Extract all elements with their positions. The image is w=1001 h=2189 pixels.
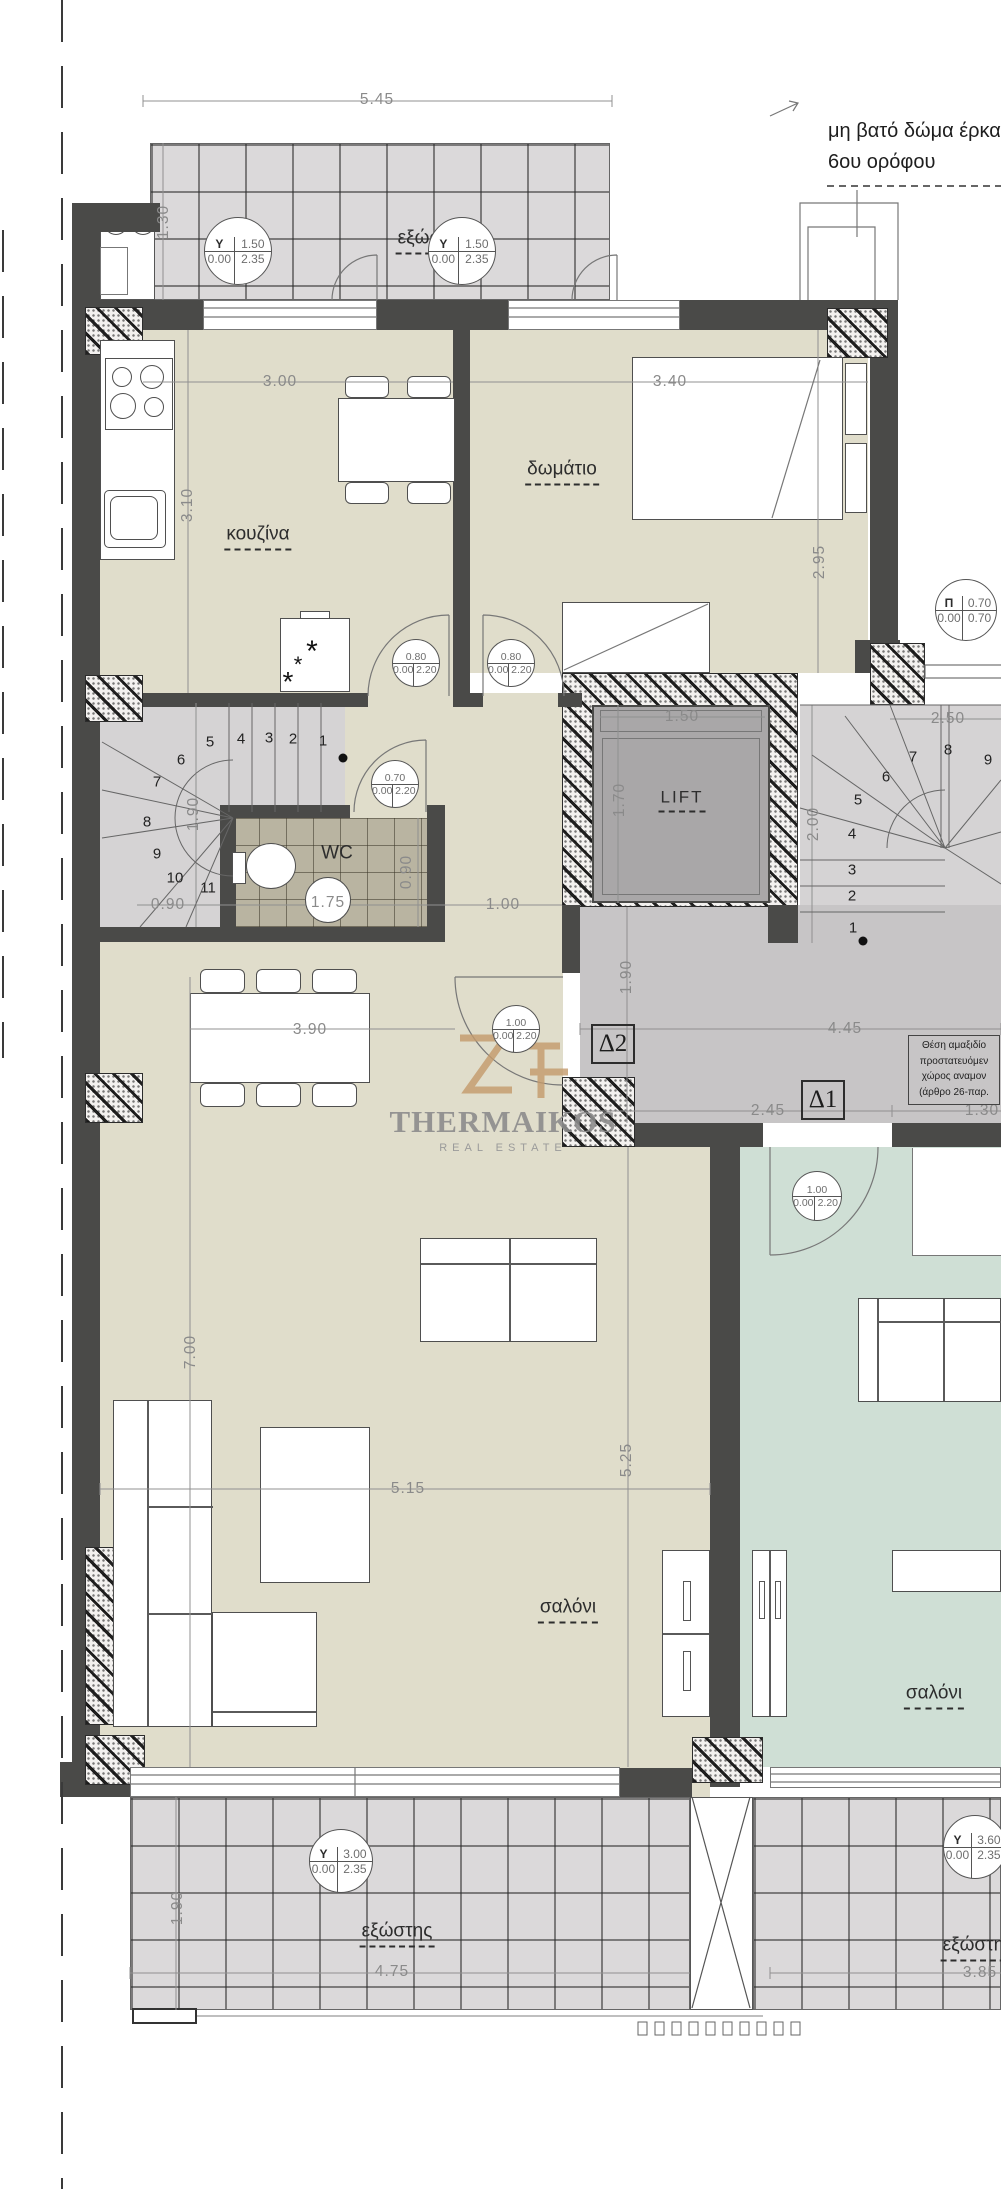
- door-height-marker: Y3.600.002.35: [943, 1815, 1001, 1879]
- stair-step-number: 4: [848, 826, 856, 843]
- dimension-label: 1.90: [169, 1891, 187, 1925]
- stair-step-number: 6: [882, 769, 890, 786]
- roof-note: μη βατό δώμα έρκα 6ου ορόφου: [828, 116, 1001, 178]
- door-height-marker: Π0.700.000.70: [935, 579, 997, 641]
- dimension-label: 5.15: [391, 1480, 425, 1498]
- stair-step-number: 4: [237, 731, 245, 748]
- door-height-marker: 1.000.002.20: [792, 1171, 842, 1221]
- stair-step-number: 5: [854, 792, 862, 809]
- door-height-marker: Y1.500.002.35: [204, 217, 272, 285]
- floor-plan: μη βατό δώμα έρκα 6ου ορόφου THERMAIKOS …: [0, 0, 1001, 2189]
- room-label-wc: WC: [319, 843, 355, 868]
- sparkle-icon: *: [306, 637, 318, 667]
- room-label-living-right: σαλόνι: [904, 1683, 964, 1710]
- dimension-label: 0.90: [398, 855, 416, 889]
- dimension-label: 1.90: [618, 960, 636, 994]
- dimension-label: 0.90: [151, 896, 185, 914]
- stair-step-number: 10: [167, 870, 184, 887]
- door-tag-Δ2: Δ2: [591, 1024, 635, 1064]
- annotation-overlay: εξώστηςκουζίναδωμάτιοWCLIFTσαλόνισαλόνιε…: [0, 0, 1001, 2189]
- stair-step-number: 5: [206, 734, 214, 751]
- dimension-label: 1.30: [155, 205, 173, 239]
- door-height-marker: 0.700.002.20: [371, 760, 419, 808]
- dimension-label: 1.70: [611, 783, 629, 817]
- stair-step-number: 11: [200, 880, 216, 897]
- dimension-label: 1.75: [311, 894, 345, 912]
- accessibility-note-line: προστατευόμεν: [909, 1054, 999, 1070]
- stair-step-number: 2: [289, 731, 297, 748]
- dimension-label: 2.95: [811, 545, 829, 579]
- stair-step-number: 9: [984, 752, 992, 769]
- room-label-balcony-bottom-left: εξώστης: [360, 1921, 435, 1948]
- dimension-label: 3.85: [963, 1964, 997, 1982]
- dimension-label: 7.00: [182, 1335, 200, 1369]
- stair-step-number: 3: [848, 862, 856, 879]
- accessibility-note-line: (άρθρο 26-παρ.: [909, 1085, 999, 1101]
- dimension-label: 3.10: [179, 488, 197, 522]
- stair-step-number: 7: [153, 774, 161, 791]
- stair-step-number: 3: [265, 730, 273, 747]
- accessibility-note-line: χώρος αναμον: [909, 1069, 999, 1085]
- dimension-label: 1.50: [665, 708, 699, 726]
- stair-step-number: 8: [944, 742, 952, 759]
- dimension-label: 3.90: [293, 1021, 327, 1039]
- door-tag-Δ1: Δ1: [801, 1080, 845, 1120]
- dimension-label: 2.50: [931, 710, 965, 728]
- stair-step-number: 1: [319, 733, 327, 750]
- room-label-balcony-bottom-right: εξώστης: [941, 1935, 1001, 1962]
- dimension-label: 1.90: [185, 797, 203, 831]
- stair-step-number: 9: [153, 846, 161, 863]
- dimension-label: 3.40: [653, 373, 687, 391]
- room-label-kitchen: κουζίνα: [224, 524, 291, 551]
- stair-step-number: 1: [849, 920, 857, 937]
- dimension-label: 2.00: [805, 807, 823, 841]
- sparkle-icon: *: [294, 654, 303, 676]
- door-height-marker: 1.000.002.20: [492, 1005, 540, 1053]
- dimension-label: 4.45: [828, 1020, 862, 1038]
- sparkle-icon: *: [283, 668, 294, 696]
- dimension-label: 5.45: [360, 91, 394, 109]
- stair-step-number: 2: [848, 888, 856, 905]
- dimension-label: 2.45: [751, 1102, 785, 1120]
- roof-note-line1: μη βατό δώμα έρκα: [828, 116, 1001, 147]
- stair-step-number: 7: [909, 749, 917, 766]
- door-height-marker: Y3.000.002.35: [309, 1829, 373, 1893]
- door-height-marker: 0.800.002.20: [392, 639, 440, 687]
- dimension-label: 1.00: [486, 896, 520, 914]
- room-label-lift: LIFT: [659, 788, 706, 813]
- accessibility-note-line: Θέση αμαξιδίο: [909, 1038, 999, 1054]
- roof-note-line2: 6ου ορόφου: [828, 147, 1001, 178]
- door-height-marker: Y1.500.002.35: [428, 217, 496, 285]
- room-label-living-left: σαλόνι: [538, 1597, 598, 1624]
- dimension-label: 4.75: [375, 1963, 409, 1981]
- room-label-bedroom: δωμάτιο: [525, 459, 599, 486]
- accessibility-note-box: Θέση αμαξιδίοπροστατευόμενχώρος αναμον(ά…: [908, 1035, 1000, 1105]
- stair-step-number: 8: [143, 814, 151, 831]
- dimension-label: 5.25: [618, 1443, 636, 1477]
- door-height-marker: 0.800.002.20: [487, 639, 535, 687]
- dimension-label: 3.00: [263, 373, 297, 391]
- stair-step-number: 6: [177, 752, 185, 769]
